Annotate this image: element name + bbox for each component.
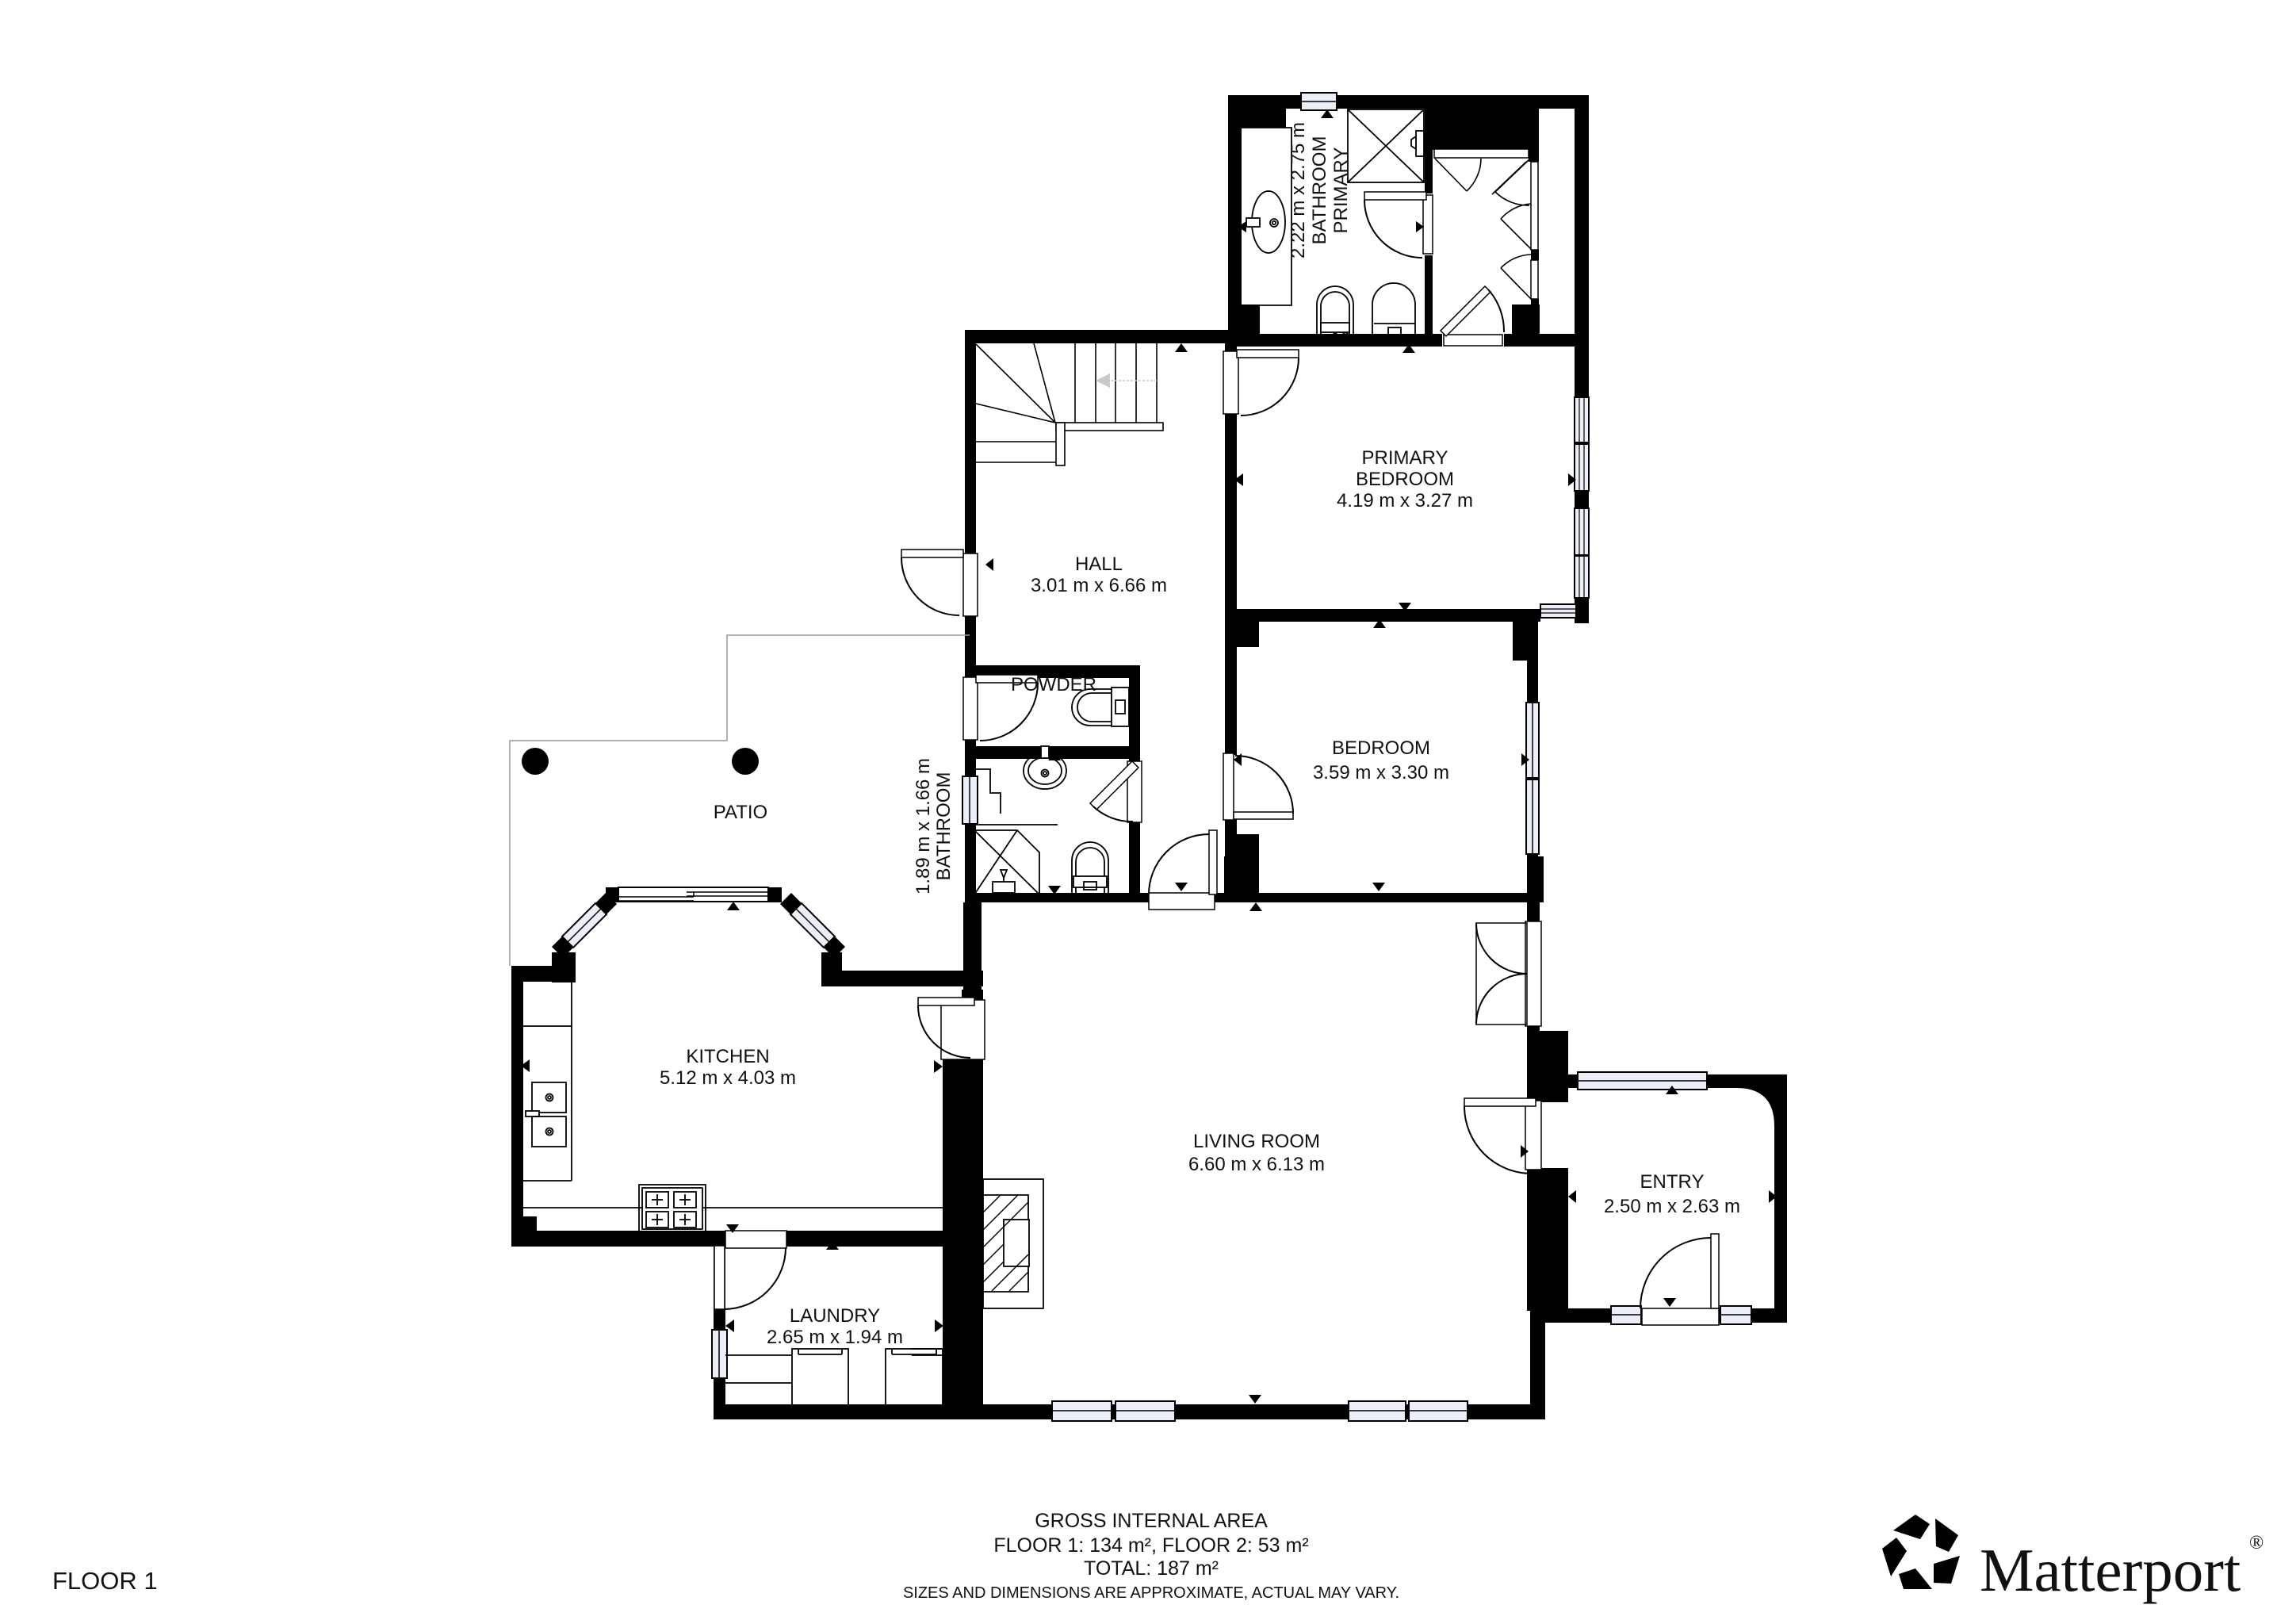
svg-text:PRIMARY: PRIMARY	[1362, 447, 1448, 469]
svg-text:3.01 m x 6.66 m: 3.01 m x 6.66 m	[1031, 575, 1167, 596]
svg-text:POWDER: POWDER	[1011, 674, 1096, 695]
svg-text:5.12 m x 4.03 m: 5.12 m x 4.03 m	[660, 1067, 796, 1089]
svg-text:BATHROOM: BATHROOM	[1309, 136, 1330, 245]
svg-text:Matterport: Matterport	[1980, 1536, 2241, 1604]
svg-text:SIZES AND DIMENSIONS ARE APPRO: SIZES AND DIMENSIONS ARE APPROXIMATE, AC…	[903, 1584, 1399, 1602]
svg-text:3.59 m x 3.30 m: 3.59 m x 3.30 m	[1313, 762, 1449, 783]
svg-text:PRIMARY: PRIMARY	[1330, 147, 1352, 234]
svg-text:PATIO: PATIO	[714, 802, 767, 823]
svg-text:ENTRY: ENTRY	[1640, 1171, 1705, 1193]
svg-text:KITCHEN: KITCHEN	[686, 1046, 769, 1067]
svg-text:LIVING ROOM: LIVING ROOM	[1193, 1131, 1320, 1152]
svg-text:LAUNDRY: LAUNDRY	[790, 1305, 880, 1327]
svg-text:BEDROOM: BEDROOM	[1332, 737, 1430, 759]
svg-text:6.60 m x 6.13 m: 6.60 m x 6.13 m	[1188, 1154, 1325, 1175]
svg-text:2.50 m x 2.63 m: 2.50 m x 2.63 m	[1604, 1196, 1740, 1217]
svg-text:2.22 m x 2.75 m: 2.22 m x 2.75 m	[1288, 122, 1309, 259]
svg-text:FLOOR 1: FLOOR 1	[52, 1567, 158, 1595]
svg-text:1.89 m x 1.66 m: 1.89 m x 1.66 m	[913, 758, 934, 894]
svg-text:2.65 m x 1.94 m: 2.65 m x 1.94 m	[767, 1327, 903, 1348]
svg-text:BEDROOM: BEDROOM	[1356, 469, 1454, 490]
svg-text:®: ®	[2249, 1533, 2263, 1553]
svg-text:HALL: HALL	[1075, 553, 1123, 575]
svg-text:GROSS INTERNAL AREA: GROSS INTERNAL AREA	[1035, 1510, 1268, 1532]
svg-text:TOTAL: 187 m²: TOTAL: 187 m²	[1084, 1557, 1219, 1580]
svg-text:BATHROOM: BATHROOM	[933, 772, 955, 881]
svg-text:4.19 m x 3.27 m: 4.19 m x 3.27 m	[1337, 490, 1473, 511]
svg-text:FLOOR 1: 134 m², FLOOR 2: 53 m: FLOOR 1: 134 m², FLOOR 2: 53 m²	[993, 1534, 1308, 1557]
